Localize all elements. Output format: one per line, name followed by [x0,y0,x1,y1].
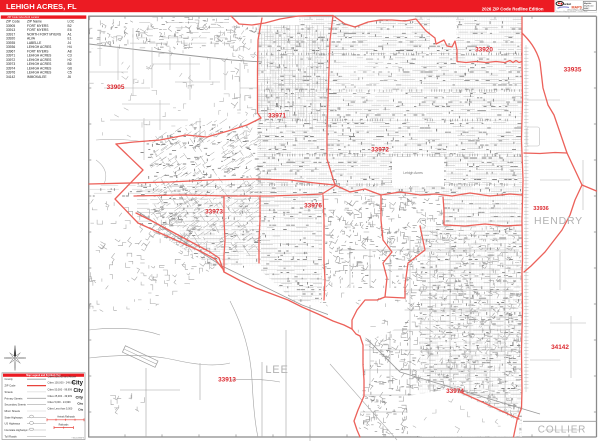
svg-text:City: City [75,394,83,399]
svg-text:City: City [74,388,84,394]
svg-text:33976: 33976 [304,203,322,210]
svg-text:Cities 50,000 - 99,999: Cities 50,000 - 99,999 [48,389,73,392]
svg-text:Minor Streets: Minor Streets [5,409,21,413]
svg-text:US Highways: US Highways [5,422,21,426]
svg-text:Primary Streets: Primary Streets [5,396,24,400]
svg-text:State Highways: State Highways [5,415,24,419]
svg-text:33974: 33974 [446,388,464,395]
svg-text:33913: 33913 [218,377,236,384]
svg-text:J6: J6 [68,75,72,79]
svg-text:IMMOKALEE: IMMOKALEE [27,75,47,79]
svg-text:MapMarker: MapMarker [584,4,594,7]
svg-text:34142: 34142 [551,344,569,351]
svg-text:Secondary Streets: Secondary Streets [5,403,27,407]
svg-text:County: County [5,377,14,381]
svg-text:HENDRY: HENDRY [534,215,583,227]
svg-text:Railroads: Railroads [59,423,70,426]
svg-text:33973: 33973 [205,209,223,216]
svg-text:Cities 5,000 - 24,999: Cities 5,000 - 24,999 [48,401,72,404]
svg-text:33936: 33936 [533,206,549,212]
svg-text:Cities Less than 5,000: Cities Less than 5,000 [48,407,73,410]
svg-text:City: City [72,381,84,387]
svg-text:33920: 33920 [475,47,493,54]
svg-text:arket: arket [564,2,571,6]
svg-text:ZIP Code: ZIP Code [5,384,16,388]
svg-text:Streets: Streets [5,390,14,394]
svg-text:34142: 34142 [6,75,15,79]
svg-text:33935: 33935 [564,67,582,74]
svg-text:Lehigh Acres: Lehigh Acres [403,171,423,175]
svg-text:33905: 33905 [107,84,125,91]
svg-text:LEHIGH ACRES, FL: LEHIGH ACRES, FL [6,2,77,11]
svg-text:Cities 25,000 - 49,999: Cities 25,000 - 49,999 [48,395,73,398]
svg-text:Interstate Highways: Interstate Highways [5,428,28,432]
svg-text:2026 ZIP Code Redline Edition: 2026 ZIP Code Redline Edition [482,7,544,12]
svg-text:scale: scale [584,8,588,10]
svg-text:33972: 33972 [371,147,389,154]
svg-text:©MarketMAPS: ©MarketMAPS [71,437,84,440]
svg-text:City: City [78,409,83,412]
svg-text:City: City [77,401,83,405]
svg-text:COLLIER: COLLIER [538,425,586,436]
svg-text:Cities 250,000 and Above: Cities 250,000 and Above [48,376,77,379]
svg-text:Amtrak Railroads: Amtrak Railroads [57,416,75,419]
svg-text:33971: 33971 [268,113,286,120]
svg-text:Toll Roads: Toll Roads [5,434,18,438]
svg-text:LEE: LEE [265,364,288,376]
